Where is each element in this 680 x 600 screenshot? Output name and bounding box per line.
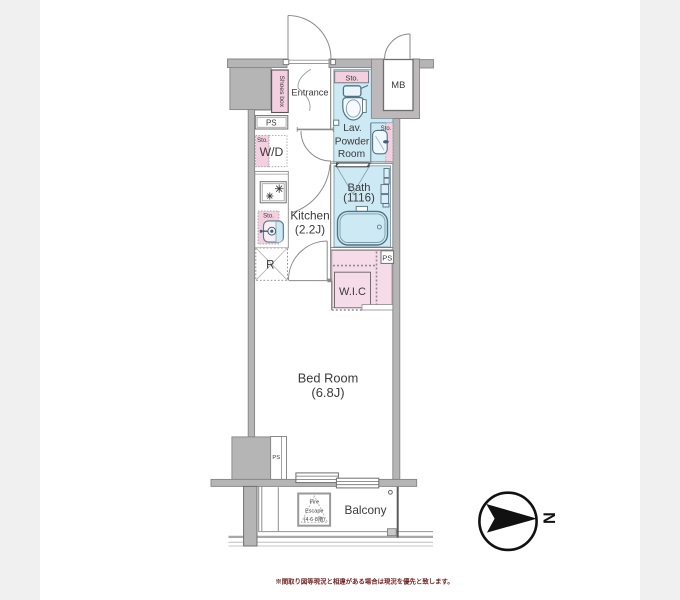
svg-text:※間取り図等現況と相違がある場合は現況を優先と致します。: ※間取り図等現況と相違がある場合は現況を優先と致します。 — [275, 576, 453, 585]
svg-text:PS: PS — [266, 119, 277, 128]
svg-text:R: R — [266, 260, 274, 272]
svg-text:PS: PS — [272, 455, 280, 461]
svg-text:(4·6·8階): (4·6·8階) — [304, 515, 325, 523]
svg-text:Bed Room: Bed Room — [298, 370, 358, 385]
svg-text:Shoes box: Shoes box — [278, 75, 285, 107]
svg-text:Lav.: Lav. — [343, 123, 362, 134]
svg-text:W/D: W/D — [260, 145, 284, 159]
svg-text:Powder: Powder — [335, 136, 370, 147]
svg-text:Sto.: Sto. — [345, 74, 358, 83]
svg-text:(2.2J): (2.2J) — [295, 223, 325, 237]
svg-text:Fire: Fire — [310, 500, 319, 506]
svg-text:Sto.: Sto. — [257, 138, 268, 144]
svg-text:Kitchen: Kitchen — [290, 208, 329, 222]
svg-text:Room: Room — [338, 149, 365, 160]
svg-text:Entrance: Entrance — [291, 88, 328, 98]
svg-text:(1116): (1116) — [343, 191, 375, 204]
svg-text:PS: PS — [382, 253, 392, 262]
svg-text:N: N — [540, 512, 558, 524]
svg-text:Balcony: Balcony — [345, 503, 387, 517]
svg-text:(6.8J): (6.8J) — [311, 385, 344, 400]
svg-text:Escape: Escape — [305, 509, 323, 515]
svg-text:Sto.: Sto. — [263, 214, 274, 220]
svg-text:MB: MB — [391, 79, 405, 90]
svg-text:W.I.C: W.I.C — [339, 286, 366, 298]
